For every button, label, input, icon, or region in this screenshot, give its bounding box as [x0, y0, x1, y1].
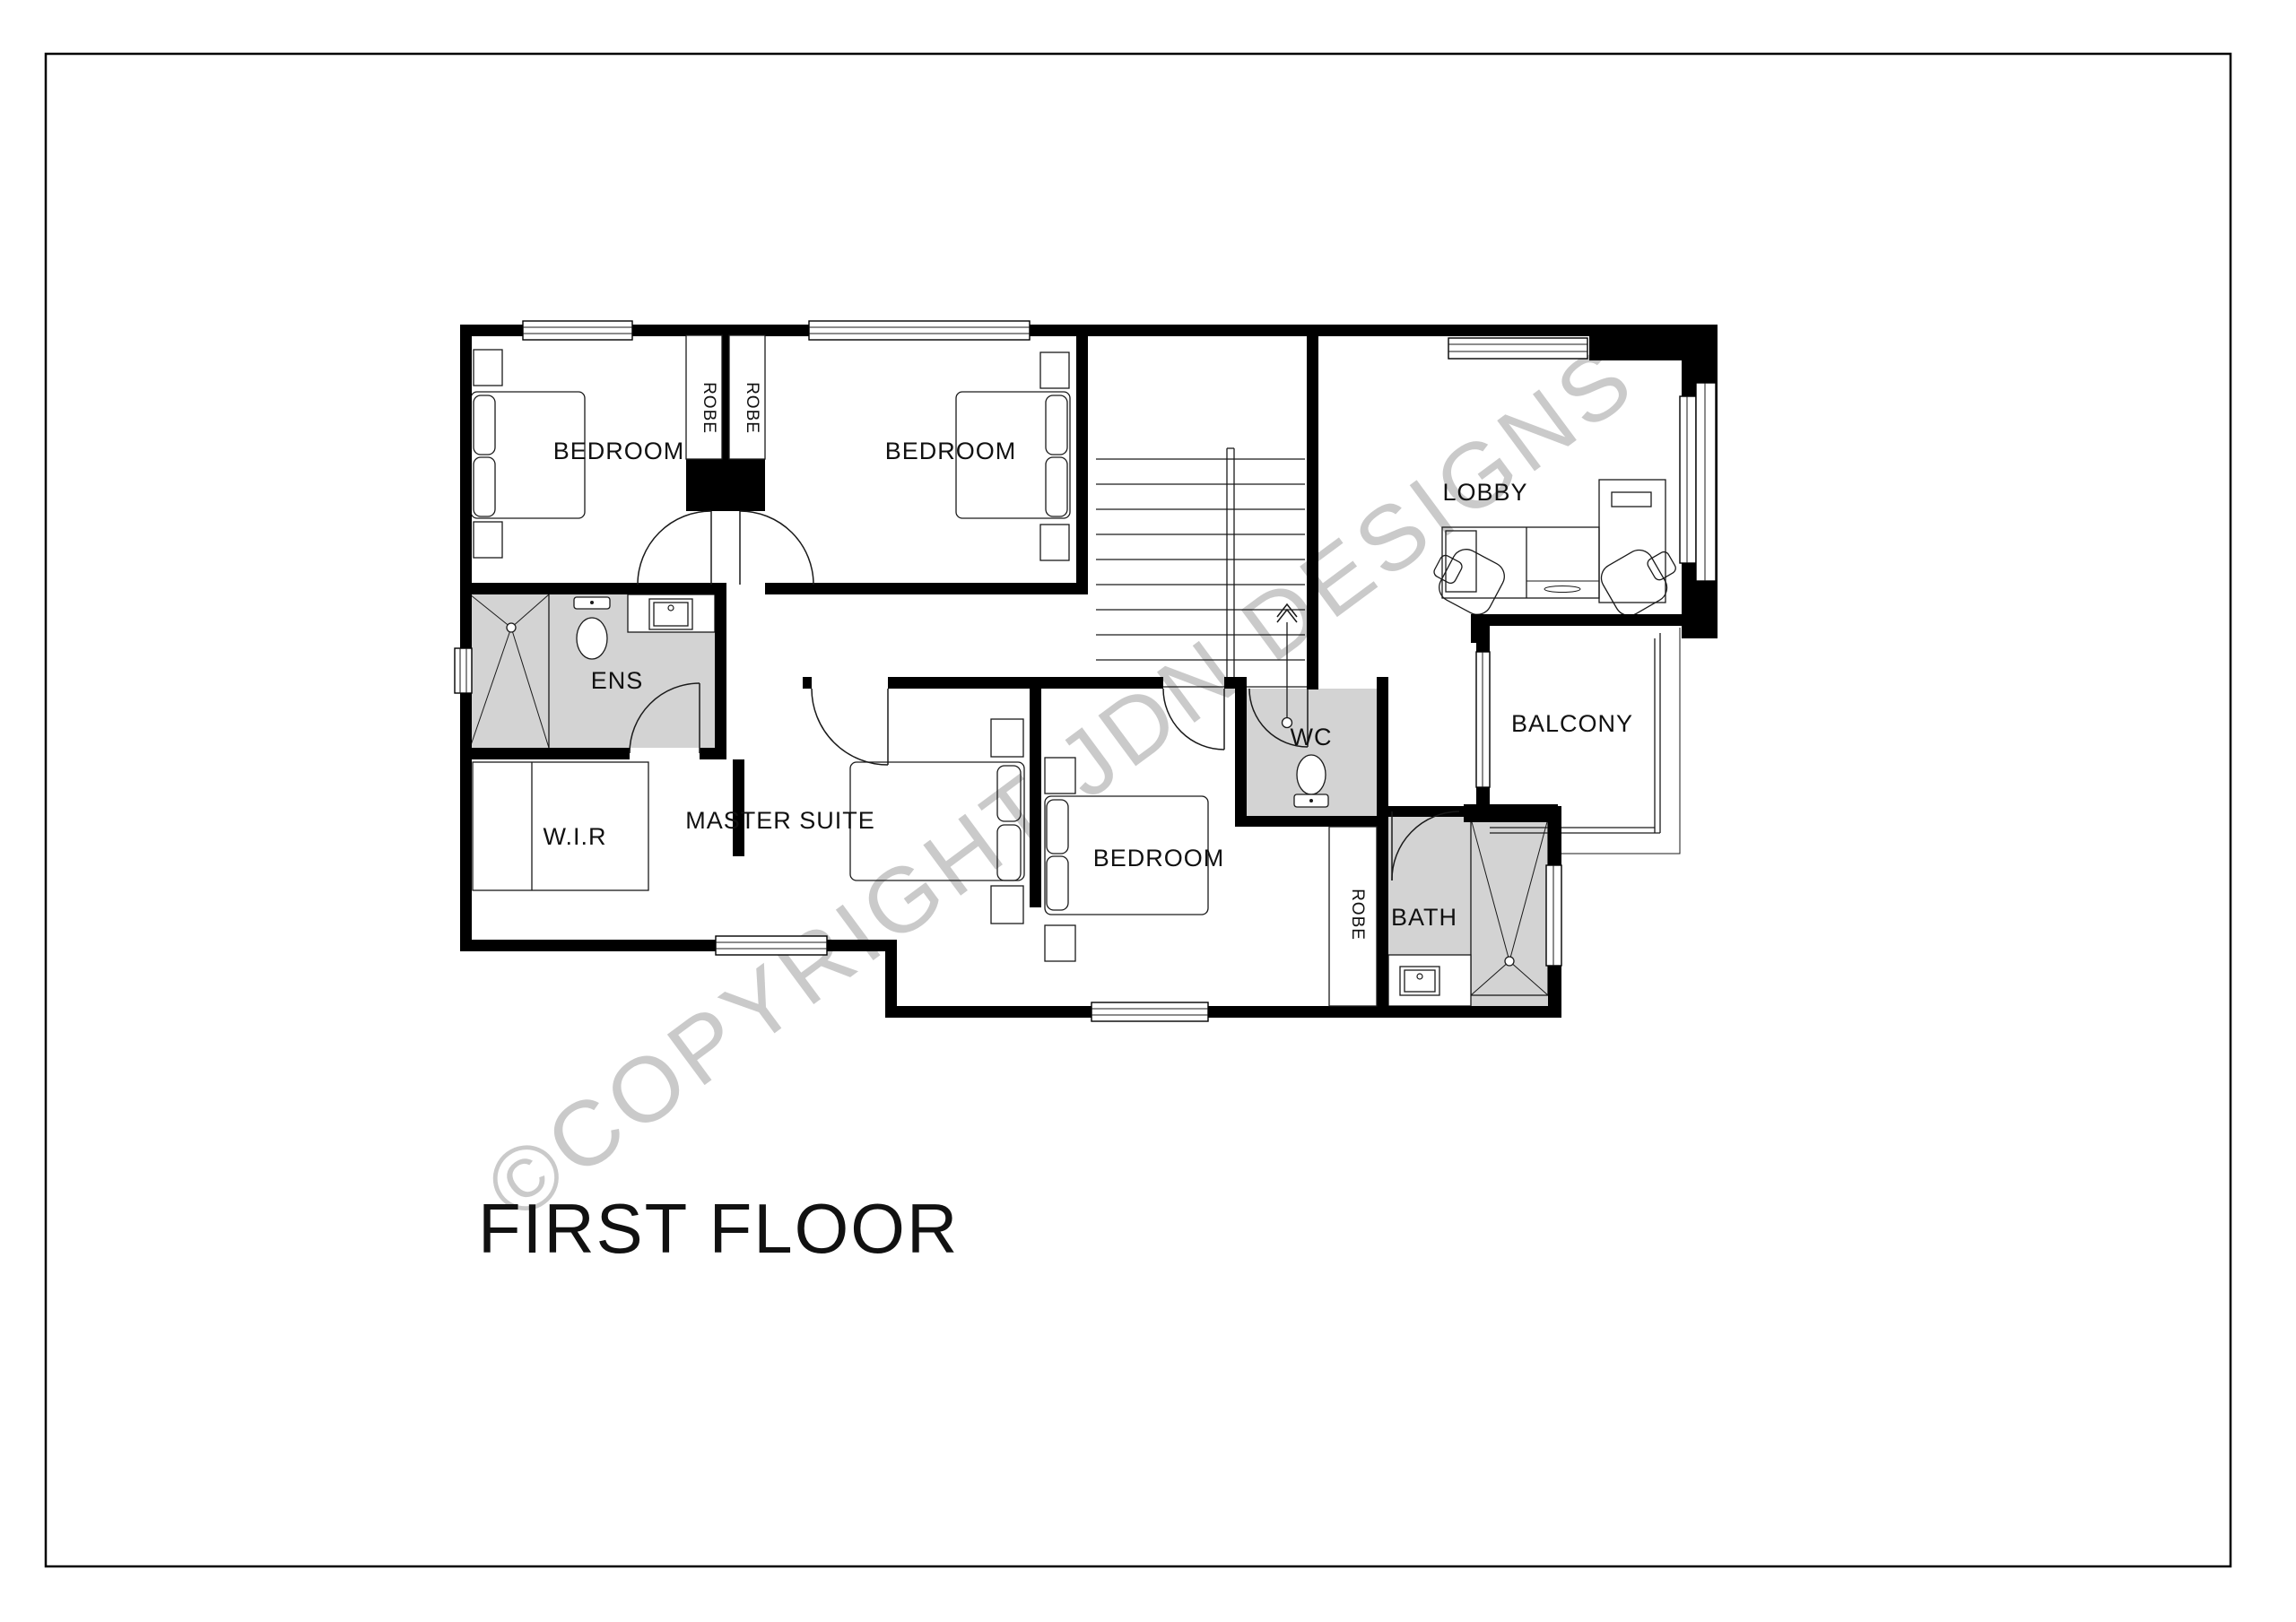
drawing-sheet: ©COPYRIGHT JDN DESIGNS — [0, 0, 2296, 1622]
floor-plan-canvas: ©COPYRIGHT JDN DESIGNS — [0, 0, 2296, 1622]
label-bedroom-bottom: BEDROOM — [1093, 845, 1225, 872]
sheet-border — [46, 54, 2231, 1566]
label-master-suite: MASTER SUITE — [685, 807, 875, 834]
bath-vanity — [1388, 955, 1471, 1006]
window-balcony-left — [1476, 652, 1490, 787]
label-wc: WC — [1291, 724, 1333, 750]
wc-toilet — [1294, 755, 1328, 807]
door-master-suite — [812, 689, 888, 765]
label-bath: BATH — [1391, 904, 1457, 931]
window-bedroom-top-mid — [809, 321, 1030, 340]
door-bedroom-top-mid — [740, 511, 813, 585]
label-bedroom-top-left: BEDROOM — [553, 438, 685, 464]
window-master-bottom — [716, 936, 827, 955]
ens-toilet — [574, 597, 610, 659]
label-lobby: LOBBY — [1442, 479, 1527, 506]
window-bedroom-bottom — [1091, 1002, 1208, 1021]
label-robe-top-2: ROBE — [743, 382, 761, 434]
window-bath-right — [1546, 865, 1561, 966]
label-bedroom-top-mid: BEDROOM — [885, 438, 1017, 464]
window-lobby-top — [1448, 338, 1587, 359]
label-robe-bottom: ROBE — [1348, 889, 1367, 941]
door-bedroom-top-left — [638, 511, 711, 585]
window-ens-left — [455, 648, 472, 693]
lobby-chair-right — [1596, 537, 1686, 621]
ens-vanity — [628, 594, 715, 632]
label-wir: W.I.R — [544, 823, 607, 850]
label-balcony: BALCONY — [1511, 710, 1633, 737]
plan-title: FIRST FLOOR — [478, 1189, 959, 1268]
window-lobby-right — [1680, 383, 1716, 581]
window-bedroom-top-left — [523, 321, 632, 340]
label-ens: ENS — [591, 667, 644, 694]
label-robe-top-1: ROBE — [700, 382, 718, 434]
